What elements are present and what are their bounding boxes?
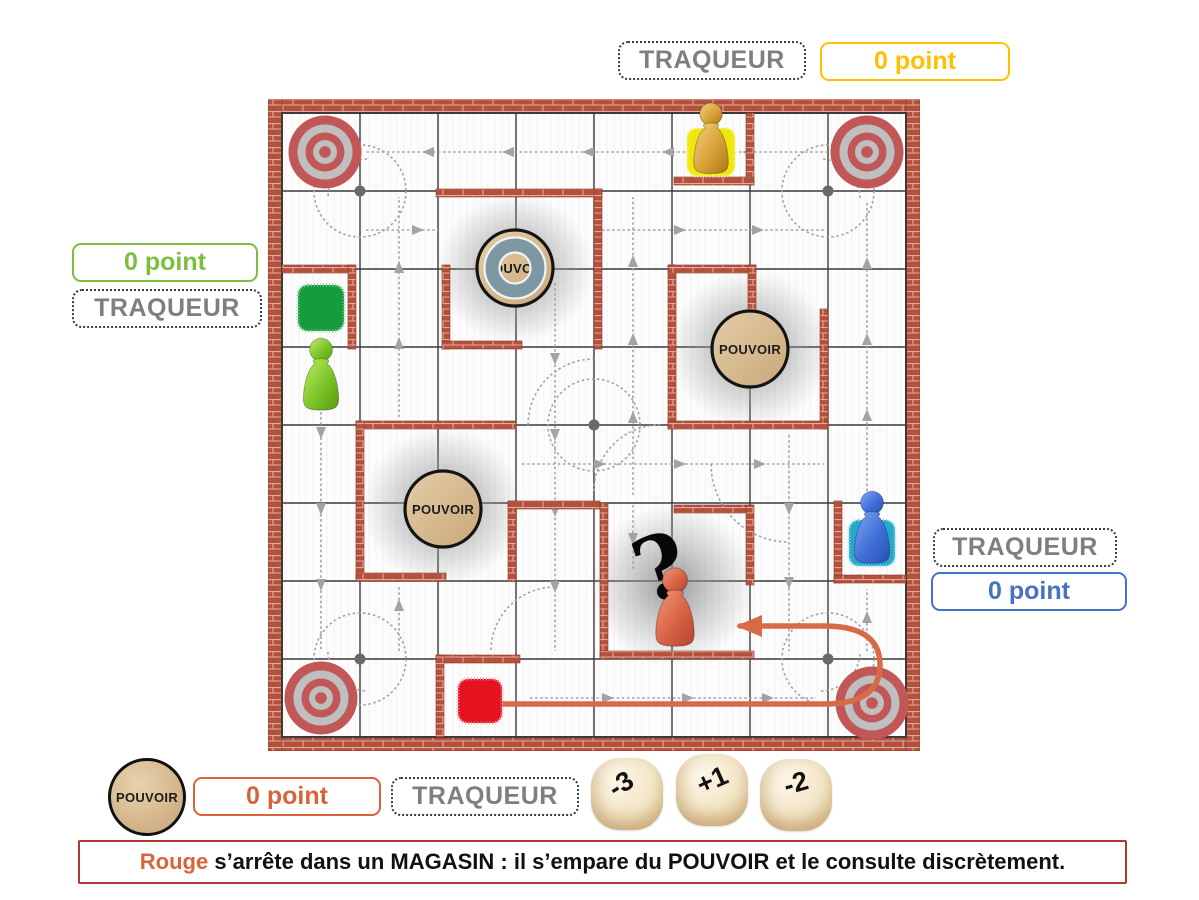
pouvoir-disc-2[interactable]: POUVOIR	[712, 311, 788, 387]
bullseye-top-right	[831, 116, 904, 189]
pouvoir-token[interactable]: POUVOIR	[108, 758, 186, 836]
score-badge-yellow: 0 point	[820, 42, 1010, 81]
pouvoir-disc-1[interactable]: POUVOIR	[477, 230, 553, 306]
die-2[interactable]: +1	[676, 754, 748, 826]
score-badge-blue: 0 point	[931, 572, 1127, 611]
svg-text:POUVOIR: POUVOIR	[412, 502, 474, 517]
status-message-text: s’arrête dans un MAGASIN : il s’empare d…	[208, 849, 1065, 875]
pouvoir-disc-3[interactable]: POUVOIR	[405, 471, 481, 547]
tracker-button-green[interactable]: TRAQUEUR	[72, 289, 262, 328]
tracker-button-yellow[interactable]: TRAQUEUR	[618, 41, 806, 80]
red-home-square	[458, 679, 502, 723]
tracker-button-red[interactable]: TRAQUEUR	[391, 777, 579, 816]
bullseye-top-left	[289, 116, 362, 189]
svg-text:POUVOIR: POUVOIR	[719, 342, 781, 357]
game-board: POUVOIR POUVOIR POUVOIR ?	[268, 99, 920, 751]
bullseye-bottom-left	[285, 662, 358, 735]
die-value: +1	[692, 760, 733, 801]
game-screen: { "colors": { "yellow": "#FFC000", "gree…	[0, 0, 1199, 900]
die-value: -2	[780, 765, 812, 801]
score-badge-red: 0 point	[193, 777, 381, 816]
die-1[interactable]: -3	[591, 758, 663, 830]
green-home-square	[298, 285, 344, 331]
status-message-subject: Rouge	[140, 849, 208, 875]
die-value: -3	[603, 764, 640, 803]
status-message: Rouge s’arrête dans un MAGASIN : il s’em…	[78, 840, 1127, 884]
tracker-button-blue[interactable]: TRAQUEUR	[933, 528, 1117, 567]
die-3[interactable]: -2	[760, 759, 832, 831]
score-badge-green: 0 point	[72, 243, 258, 282]
